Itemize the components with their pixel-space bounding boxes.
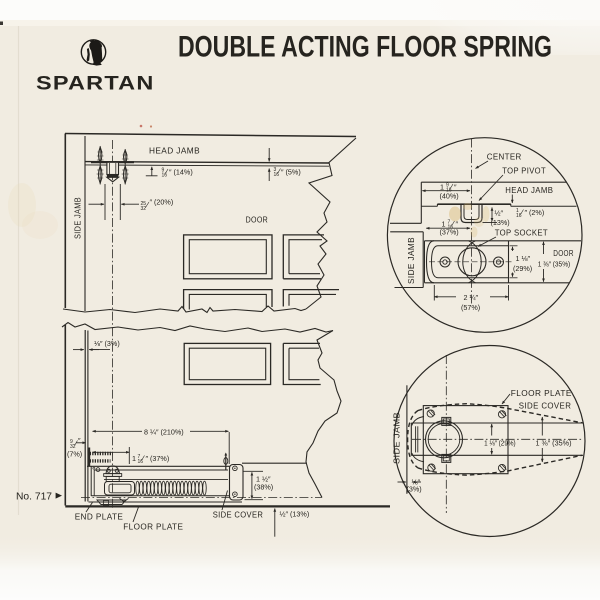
svg-text:1: 1: [440, 183, 444, 192]
svg-text:″ (14%): ″ (14%): [169, 168, 193, 177]
svg-text:(40%): (40%): [440, 192, 459, 201]
svg-text:½″: ½″: [495, 209, 504, 218]
svg-text:(3%): (3%): [407, 485, 422, 494]
svg-text:″ (37%): ″ (37%): [146, 454, 170, 463]
svg-text:1 ⅜″ (35%): 1 ⅜″ (35%): [536, 439, 572, 448]
svg-text:SPARTAN: SPARTAN: [36, 73, 155, 95]
svg-text:1 ⅛″ (29%): 1 ⅛″ (29%): [484, 439, 515, 448]
svg-text:FLOOR PLATE: FLOOR PLATE: [123, 522, 183, 532]
svg-text:1 ⅛″: 1 ⅛″: [516, 254, 531, 263]
svg-text:TOP PIVOT: TOP PIVOT: [502, 166, 546, 176]
svg-text:8 ¼″ (210%): 8 ¼″ (210%): [144, 428, 184, 437]
svg-text:HEAD JAMB: HEAD JAMB: [149, 146, 200, 156]
svg-text:HEAD JAMB: HEAD JAMB: [505, 185, 553, 195]
svg-text:(57%): (57%): [461, 303, 480, 312]
svg-text:½″ (13%): ½″ (13%): [280, 510, 310, 519]
svg-text:(37%): (37%): [440, 228, 459, 237]
svg-text:SIDE JAMB: SIDE JAMB: [406, 237, 416, 284]
svg-text:⅛″ (3%): ⅛″ (3%): [94, 339, 120, 348]
svg-text:DOUBLE ACTING FLOOR SPRING: DOUBLE ACTING FLOOR SPRING: [178, 31, 552, 64]
svg-text:DOOR: DOOR: [246, 215, 269, 225]
svg-text:″ (5%): ″ (5%): [281, 168, 301, 177]
svg-text:(13%): (13%): [491, 218, 510, 227]
svg-text:TOP SOCKET: TOP SOCKET: [495, 228, 548, 238]
svg-text:16: 16: [162, 173, 168, 179]
svg-text:2 ¼″: 2 ¼″: [464, 293, 479, 302]
svg-text:1: 1: [132, 454, 136, 463]
svg-text:(38%): (38%): [254, 483, 273, 492]
svg-text:16: 16: [138, 459, 144, 465]
svg-text:16: 16: [274, 172, 280, 178]
svg-text:SIDE COVER: SIDE COVER: [519, 401, 572, 411]
svg-text:DOOR: DOOR: [553, 248, 574, 258]
svg-text:No. 717: No. 717: [16, 491, 52, 503]
svg-text:FLOOR PLATE: FLOOR PLATE: [511, 388, 572, 398]
svg-text:″ (20%): ″ (20%): [150, 198, 174, 207]
svg-text:SIDE COVER: SIDE COVER: [213, 510, 264, 520]
svg-text:SIDE JAMB: SIDE JAMB: [392, 412, 402, 464]
svg-text:END PLATE: END PLATE: [75, 512, 124, 522]
svg-text:SIDE JAMB: SIDE JAMB: [73, 197, 83, 239]
svg-text:CENTER: CENTER: [487, 152, 522, 162]
svg-text:″ (2%): ″ (2%): [525, 208, 545, 217]
svg-text:32: 32: [141, 206, 147, 212]
svg-text:(29%): (29%): [513, 264, 532, 273]
svg-text:1 ⅜″ (35%): 1 ⅜″ (35%): [538, 260, 571, 269]
svg-text:(7%): (7%): [67, 450, 82, 459]
